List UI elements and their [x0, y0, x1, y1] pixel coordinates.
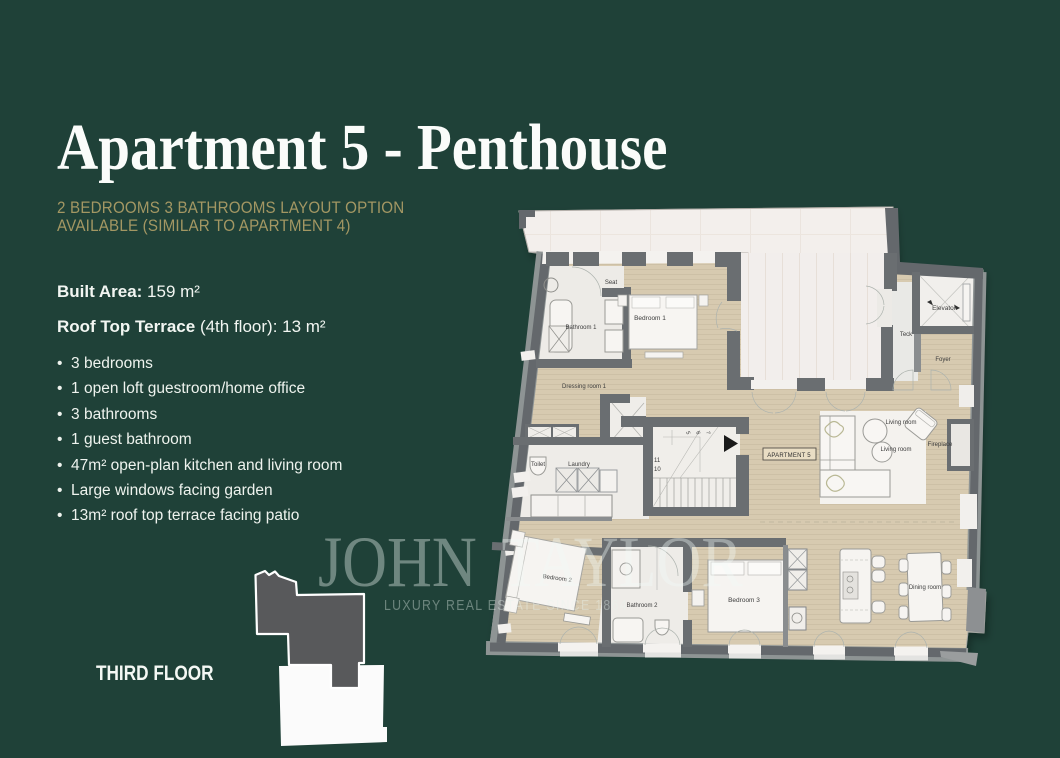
- svg-text:Living room: Living room: [880, 447, 911, 453]
- svg-text:Living room: Living room: [885, 420, 916, 426]
- svg-text:Seat: Seat: [605, 280, 618, 286]
- svg-text:Elevator: Elevator: [932, 305, 957, 312]
- svg-text:Bathroom 1: Bathroom 1: [565, 325, 597, 331]
- svg-text:Dressing room 1: Dressing room 1: [562, 384, 607, 390]
- svg-text:Teck: Teck: [900, 332, 913, 338]
- svg-text:Fireplace: Fireplace: [928, 442, 953, 448]
- svg-text:Foyer: Foyer: [935, 357, 950, 363]
- svg-text:Bedroom 1: Bedroom 1: [634, 315, 666, 322]
- svg-text:Laundry: Laundry: [568, 462, 590, 468]
- svg-text:APARTMENT 5: APARTMENT 5: [767, 453, 811, 459]
- svg-text:Toilet: Toilet: [531, 462, 545, 468]
- svg-text:11: 11: [654, 458, 661, 464]
- svg-text:10: 10: [654, 467, 661, 473]
- svg-text:Dining room: Dining room: [909, 585, 941, 591]
